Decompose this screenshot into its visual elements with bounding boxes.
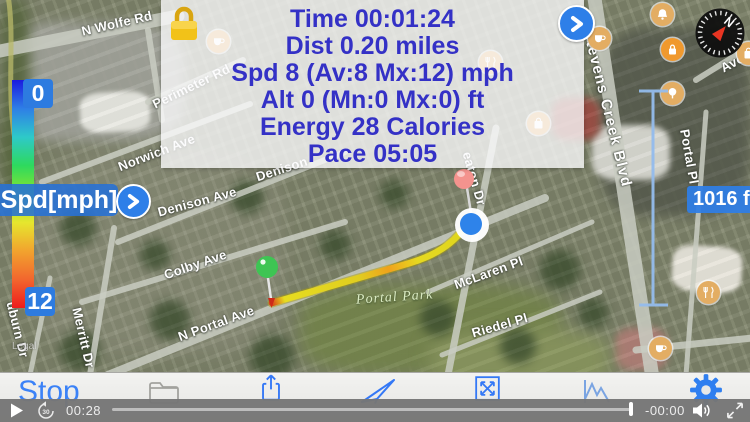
stat-line: Spd 8 (Av:8 Mx:12) mph — [161, 60, 584, 87]
chevron-right-icon — [569, 15, 585, 33]
stat-line: Alt 0 (Mn:0 Mx:0) ft — [161, 87, 584, 114]
speed-scale-expand-button[interactable] — [116, 184, 151, 219]
current-location-blue-dot — [455, 208, 489, 242]
fullscreen-icon[interactable] — [726, 402, 744, 419]
video-progress-track[interactable] — [112, 408, 630, 411]
stat-line: Time 00:01:24 — [161, 6, 584, 33]
video-playhead[interactable] — [629, 402, 633, 416]
ruler-distance-badge: 1016 ft — [687, 186, 750, 213]
compass-icon[interactable]: N — [694, 7, 746, 59]
stat-line: Pace 05:05 — [161, 141, 584, 168]
speed-scale-max: 12 — [25, 287, 55, 316]
route-track — [272, 219, 470, 303]
volume-icon[interactable] — [692, 402, 714, 419]
speed-scale-title: Spd[mph] — [0, 184, 118, 216]
svg-text:30: 30 — [42, 409, 50, 416]
remaining-time: -00:00 — [645, 403, 685, 418]
chevron-right-icon — [126, 193, 141, 210]
stats-panel: Time 00:01:24Dist 0.20 milesSpd 8 (Av:8 … — [161, 0, 584, 168]
dropped-red-pin — [454, 169, 474, 213]
elapsed-time: 00:28 — [66, 403, 101, 418]
speed-scale-min: 0 — [23, 79, 53, 108]
skip-back-30-icon[interactable]: 30 — [36, 401, 56, 421]
app-window: N Wolfe RdPerimeter RdNorwich AveDenison… — [0, 0, 750, 422]
share-icon[interactable] — [256, 373, 286, 402]
stat-line: Energy 28 Calories — [161, 114, 584, 141]
play-icon[interactable] — [10, 403, 24, 418]
distance-ruler — [635, 85, 675, 310]
lock-icon[interactable] — [166, 3, 202, 43]
panel-next-button[interactable] — [558, 5, 595, 42]
stats-lines: Time 00:01:24Dist 0.20 milesSpd 8 (Av:8 … — [161, 6, 584, 168]
stat-line: Dist 0.20 miles — [161, 33, 584, 60]
